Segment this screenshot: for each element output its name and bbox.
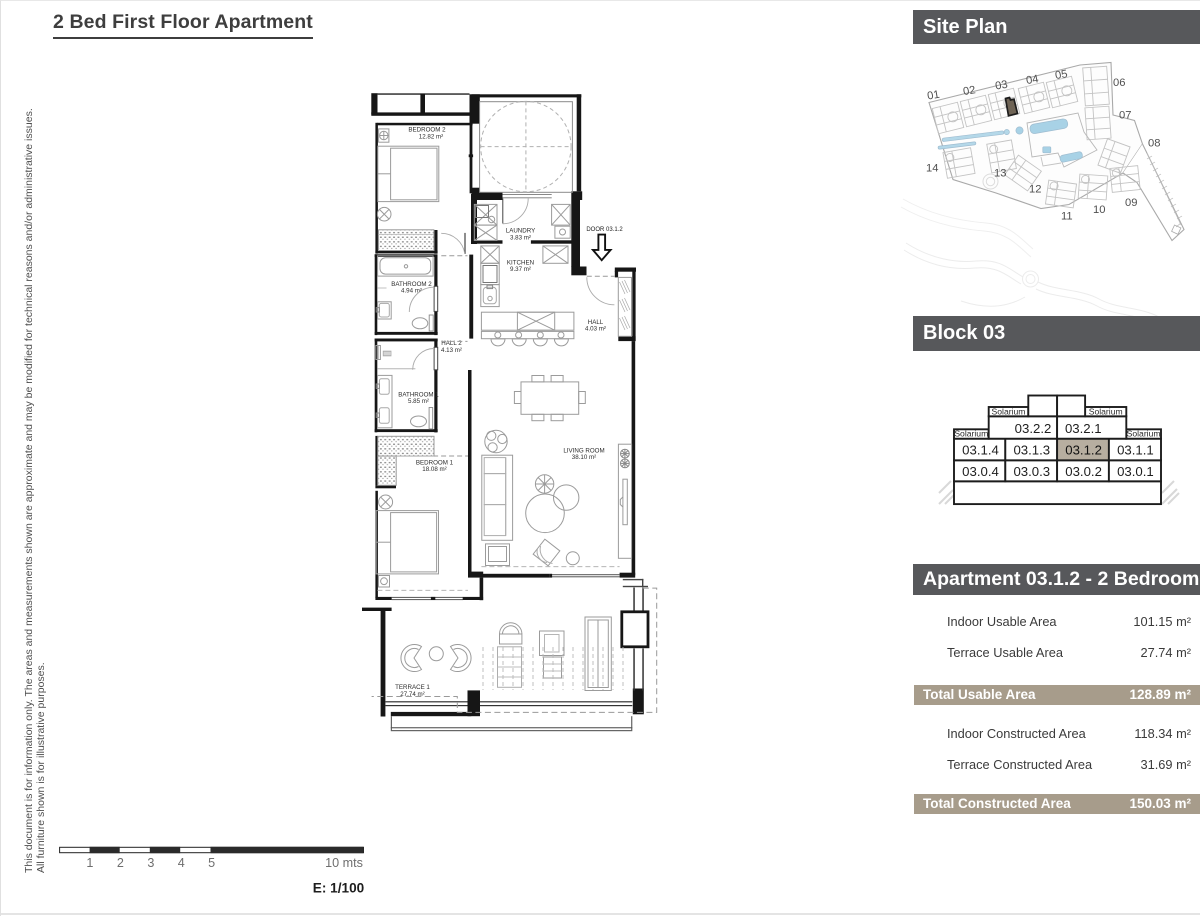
svg-text:05: 05: [1054, 68, 1068, 82]
svg-text:18.08 m²: 18.08 m²: [422, 466, 446, 473]
svg-text:10 mts: 10 mts: [325, 856, 363, 870]
svg-text:03.1.3: 03.1.3: [1013, 443, 1050, 458]
svg-text:2: 2: [117, 856, 124, 870]
svg-text:03: 03: [994, 79, 1008, 93]
svg-text:9.37 m²: 9.37 m²: [510, 266, 531, 273]
svg-text:14: 14: [926, 163, 938, 175]
svg-text:03.2.1: 03.2.1: [1065, 421, 1102, 436]
svg-text:11: 11: [1061, 211, 1073, 223]
svg-text:3.83 m²: 3.83 m²: [510, 234, 531, 241]
svg-text:03.2.2: 03.2.2: [1015, 421, 1052, 436]
svg-text:38.10 m²: 38.10 m²: [572, 454, 596, 461]
svg-text:03.1.1: 03.1.1: [1117, 443, 1154, 458]
svg-text:4.94 m²: 4.94 m²: [401, 288, 422, 295]
svg-text:27.74 m²: 27.74 m²: [400, 691, 424, 698]
svg-text:E: 1/100: E: 1/100: [313, 881, 364, 896]
svg-text:Solarium: Solarium: [1089, 406, 1123, 416]
svg-text:1: 1: [86, 856, 93, 870]
svg-text:4.13 m²: 4.13 m²: [441, 347, 462, 354]
svg-text:12: 12: [1029, 184, 1041, 196]
svg-text:3: 3: [147, 856, 154, 870]
svg-text:Solarium: Solarium: [992, 406, 1026, 416]
svg-text:5.85 m²: 5.85 m²: [408, 398, 429, 405]
svg-text:04: 04: [1025, 73, 1039, 87]
svg-text:03.1.2: 03.1.2: [1065, 443, 1102, 458]
svg-text:DOOR 03.1.2: DOOR 03.1.2: [586, 227, 623, 233]
svg-text:13: 13: [994, 168, 1006, 180]
svg-text:03.0.1: 03.0.1: [1117, 464, 1154, 479]
svg-text:10: 10: [1093, 204, 1105, 216]
svg-text:09: 09: [1125, 197, 1137, 209]
svg-text:03.0.2: 03.0.2: [1065, 464, 1102, 479]
svg-text:12.82 m²: 12.82 m²: [419, 133, 443, 140]
svg-text:03.0.3: 03.0.3: [1013, 464, 1050, 479]
svg-text:06: 06: [1113, 77, 1125, 89]
svg-text:03.1.4: 03.1.4: [962, 443, 999, 458]
svg-text:Solarium: Solarium: [1127, 429, 1161, 439]
svg-text:03.0.4: 03.0.4: [962, 464, 999, 479]
svg-text:4.03 m²: 4.03 m²: [585, 325, 606, 332]
svg-text:02: 02: [962, 84, 976, 98]
svg-text:4: 4: [178, 856, 185, 870]
svg-text:07: 07: [1119, 110, 1131, 122]
svg-text:08: 08: [1148, 138, 1160, 150]
svg-text:01: 01: [926, 89, 940, 103]
svg-text:Solarium: Solarium: [954, 429, 988, 439]
svg-text:5: 5: [208, 856, 215, 870]
